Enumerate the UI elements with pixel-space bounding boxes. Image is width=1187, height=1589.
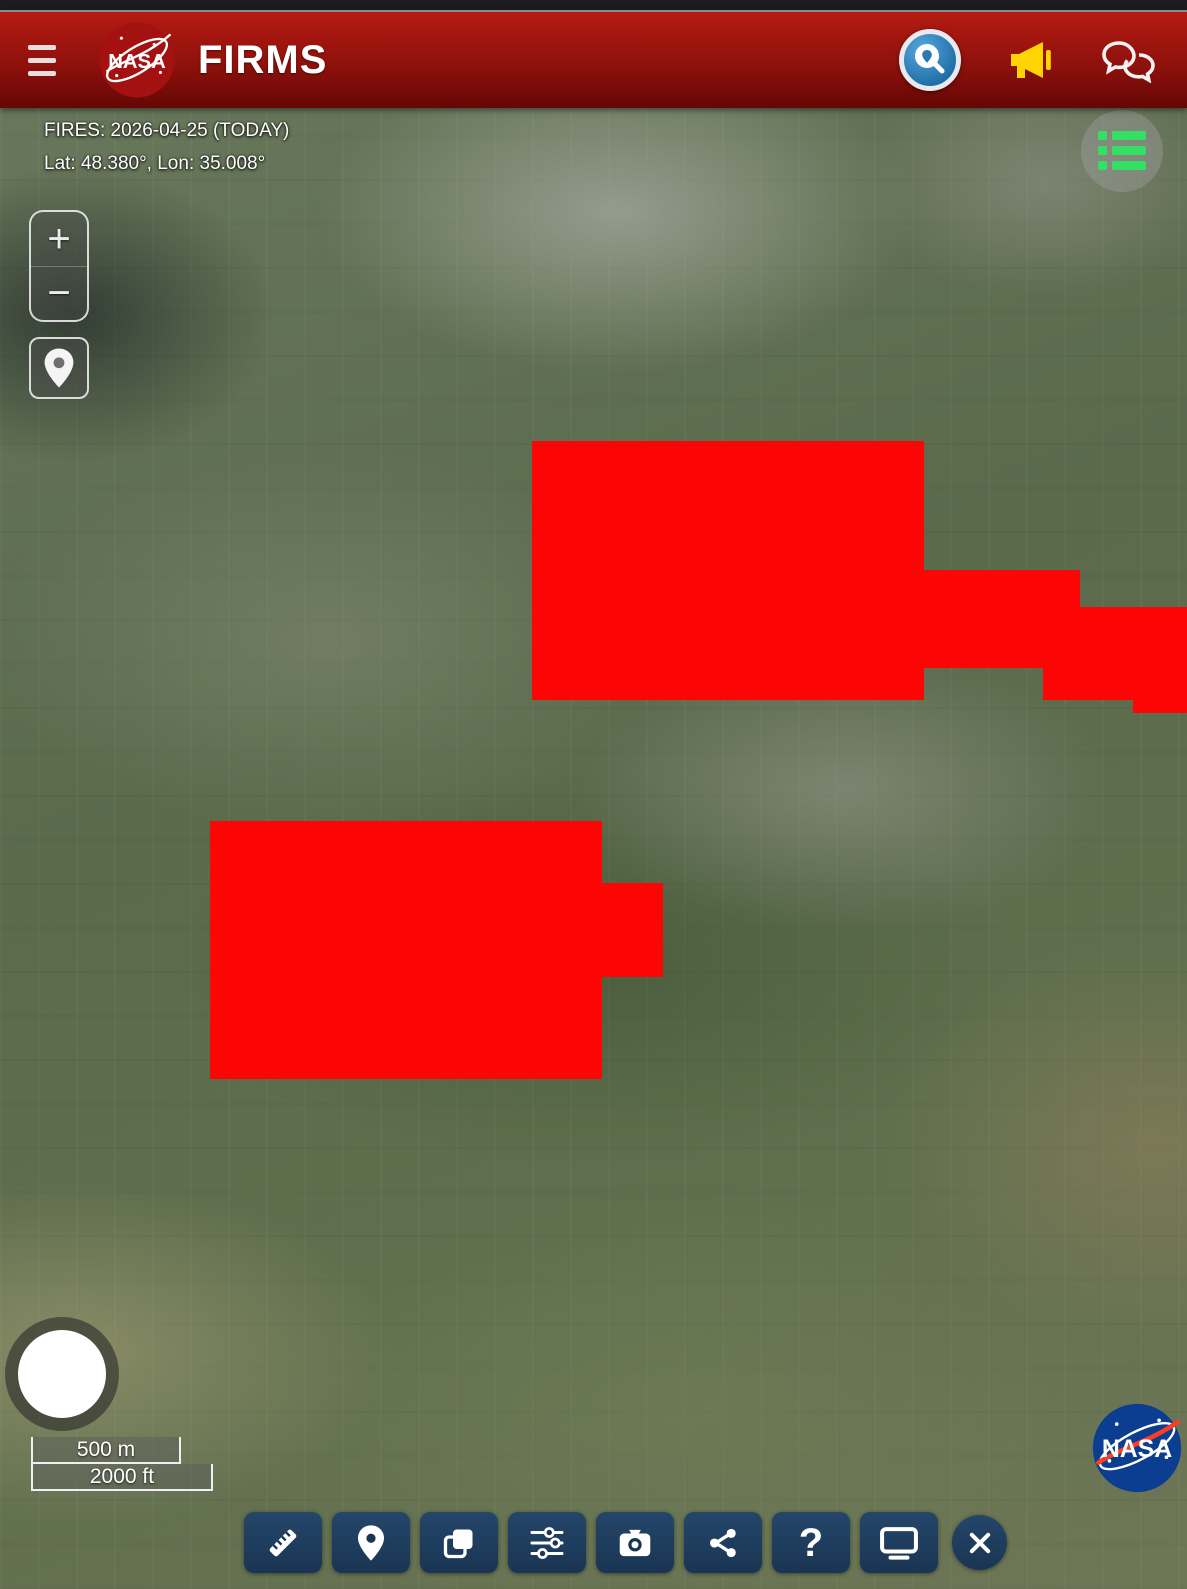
fire-list-button[interactable] xyxy=(1081,110,1163,192)
fire-footprint[interactable] xyxy=(924,570,1080,668)
layers-button[interactable] xyxy=(420,1512,498,1573)
nasa-watermark-logo: NASA xyxy=(1091,1402,1183,1494)
map-pin-icon xyxy=(354,1524,388,1562)
screenshot-button[interactable] xyxy=(596,1512,674,1573)
scale-metric: 500 m xyxy=(33,1437,181,1464)
firms-app: NASA FIRMS xyxy=(0,0,1187,1589)
feedback-button[interactable] xyxy=(1101,37,1157,83)
adjustments-button[interactable] xyxy=(508,1512,586,1573)
question-icon: ? xyxy=(799,1523,823,1563)
help-button[interactable]: ? xyxy=(772,1512,850,1573)
zoom-control: + − xyxy=(29,210,89,322)
bottom-toolbar: ? xyxy=(244,1512,1007,1573)
coordinates-label: Lat: 48.380°, Lon: 35.008° xyxy=(44,147,289,180)
compass-reset-control[interactable] xyxy=(5,1317,119,1431)
announcements-button[interactable] xyxy=(1005,36,1057,84)
fire-footprint[interactable] xyxy=(1080,607,1187,700)
fires-date-label: FIRES: 2026-04-25 (TODAY) xyxy=(44,114,289,147)
layers-icon xyxy=(441,1525,477,1561)
sliders-icon xyxy=(528,1525,566,1561)
app-title: FIRMS xyxy=(198,38,327,83)
nasa-header-logo: NASA xyxy=(98,21,176,99)
chat-bubbles-icon xyxy=(1101,37,1157,83)
monitor-icon xyxy=(879,1525,919,1561)
search-location-button[interactable] xyxy=(899,29,961,91)
menu-button[interactable] xyxy=(18,32,74,88)
fire-footprint[interactable] xyxy=(210,821,602,1079)
compass-face xyxy=(18,1330,106,1418)
zoom-in-button[interactable]: + xyxy=(31,212,87,266)
megaphone-icon xyxy=(1005,36,1057,84)
display-button[interactable] xyxy=(860,1512,938,1573)
map-scale-bar: 500 m 2000 ft xyxy=(31,1437,213,1491)
scale-imperial: 2000 ft xyxy=(33,1464,213,1491)
hamburger-icon xyxy=(28,45,56,50)
my-location-button[interactable] xyxy=(29,337,89,399)
close-icon xyxy=(966,1529,994,1557)
zoom-out-button[interactable]: − xyxy=(31,266,87,320)
svg-text:NASA: NASA xyxy=(1102,1436,1172,1463)
fire-footprint[interactable] xyxy=(602,883,663,977)
share-icon xyxy=(706,1526,740,1560)
camera-icon xyxy=(617,1527,653,1559)
location-pin-icon xyxy=(41,347,77,389)
fire-footprint[interactable] xyxy=(532,441,924,700)
status-strip xyxy=(0,0,1187,10)
search-location-icon xyxy=(912,42,948,78)
ruler-icon xyxy=(265,1525,301,1561)
app-header: NASA FIRMS xyxy=(0,10,1187,108)
share-button[interactable] xyxy=(684,1512,762,1573)
close-toolbar-button[interactable] xyxy=(952,1515,1007,1570)
svg-text:NASA: NASA xyxy=(108,51,166,73)
map-status-text: FIRES: 2026-04-25 (TODAY) Lat: 48.380°, … xyxy=(44,114,289,180)
list-icon xyxy=(1096,129,1148,173)
measure-button[interactable] xyxy=(244,1512,322,1573)
location-button[interactable] xyxy=(332,1512,410,1573)
fire-footprint[interactable] xyxy=(1043,668,1080,700)
satellite-map[interactable]: FIRES: 2026-04-25 (TODAY) Lat: 48.380°, … xyxy=(0,108,1187,1589)
fire-footprint[interactable] xyxy=(1133,700,1187,713)
